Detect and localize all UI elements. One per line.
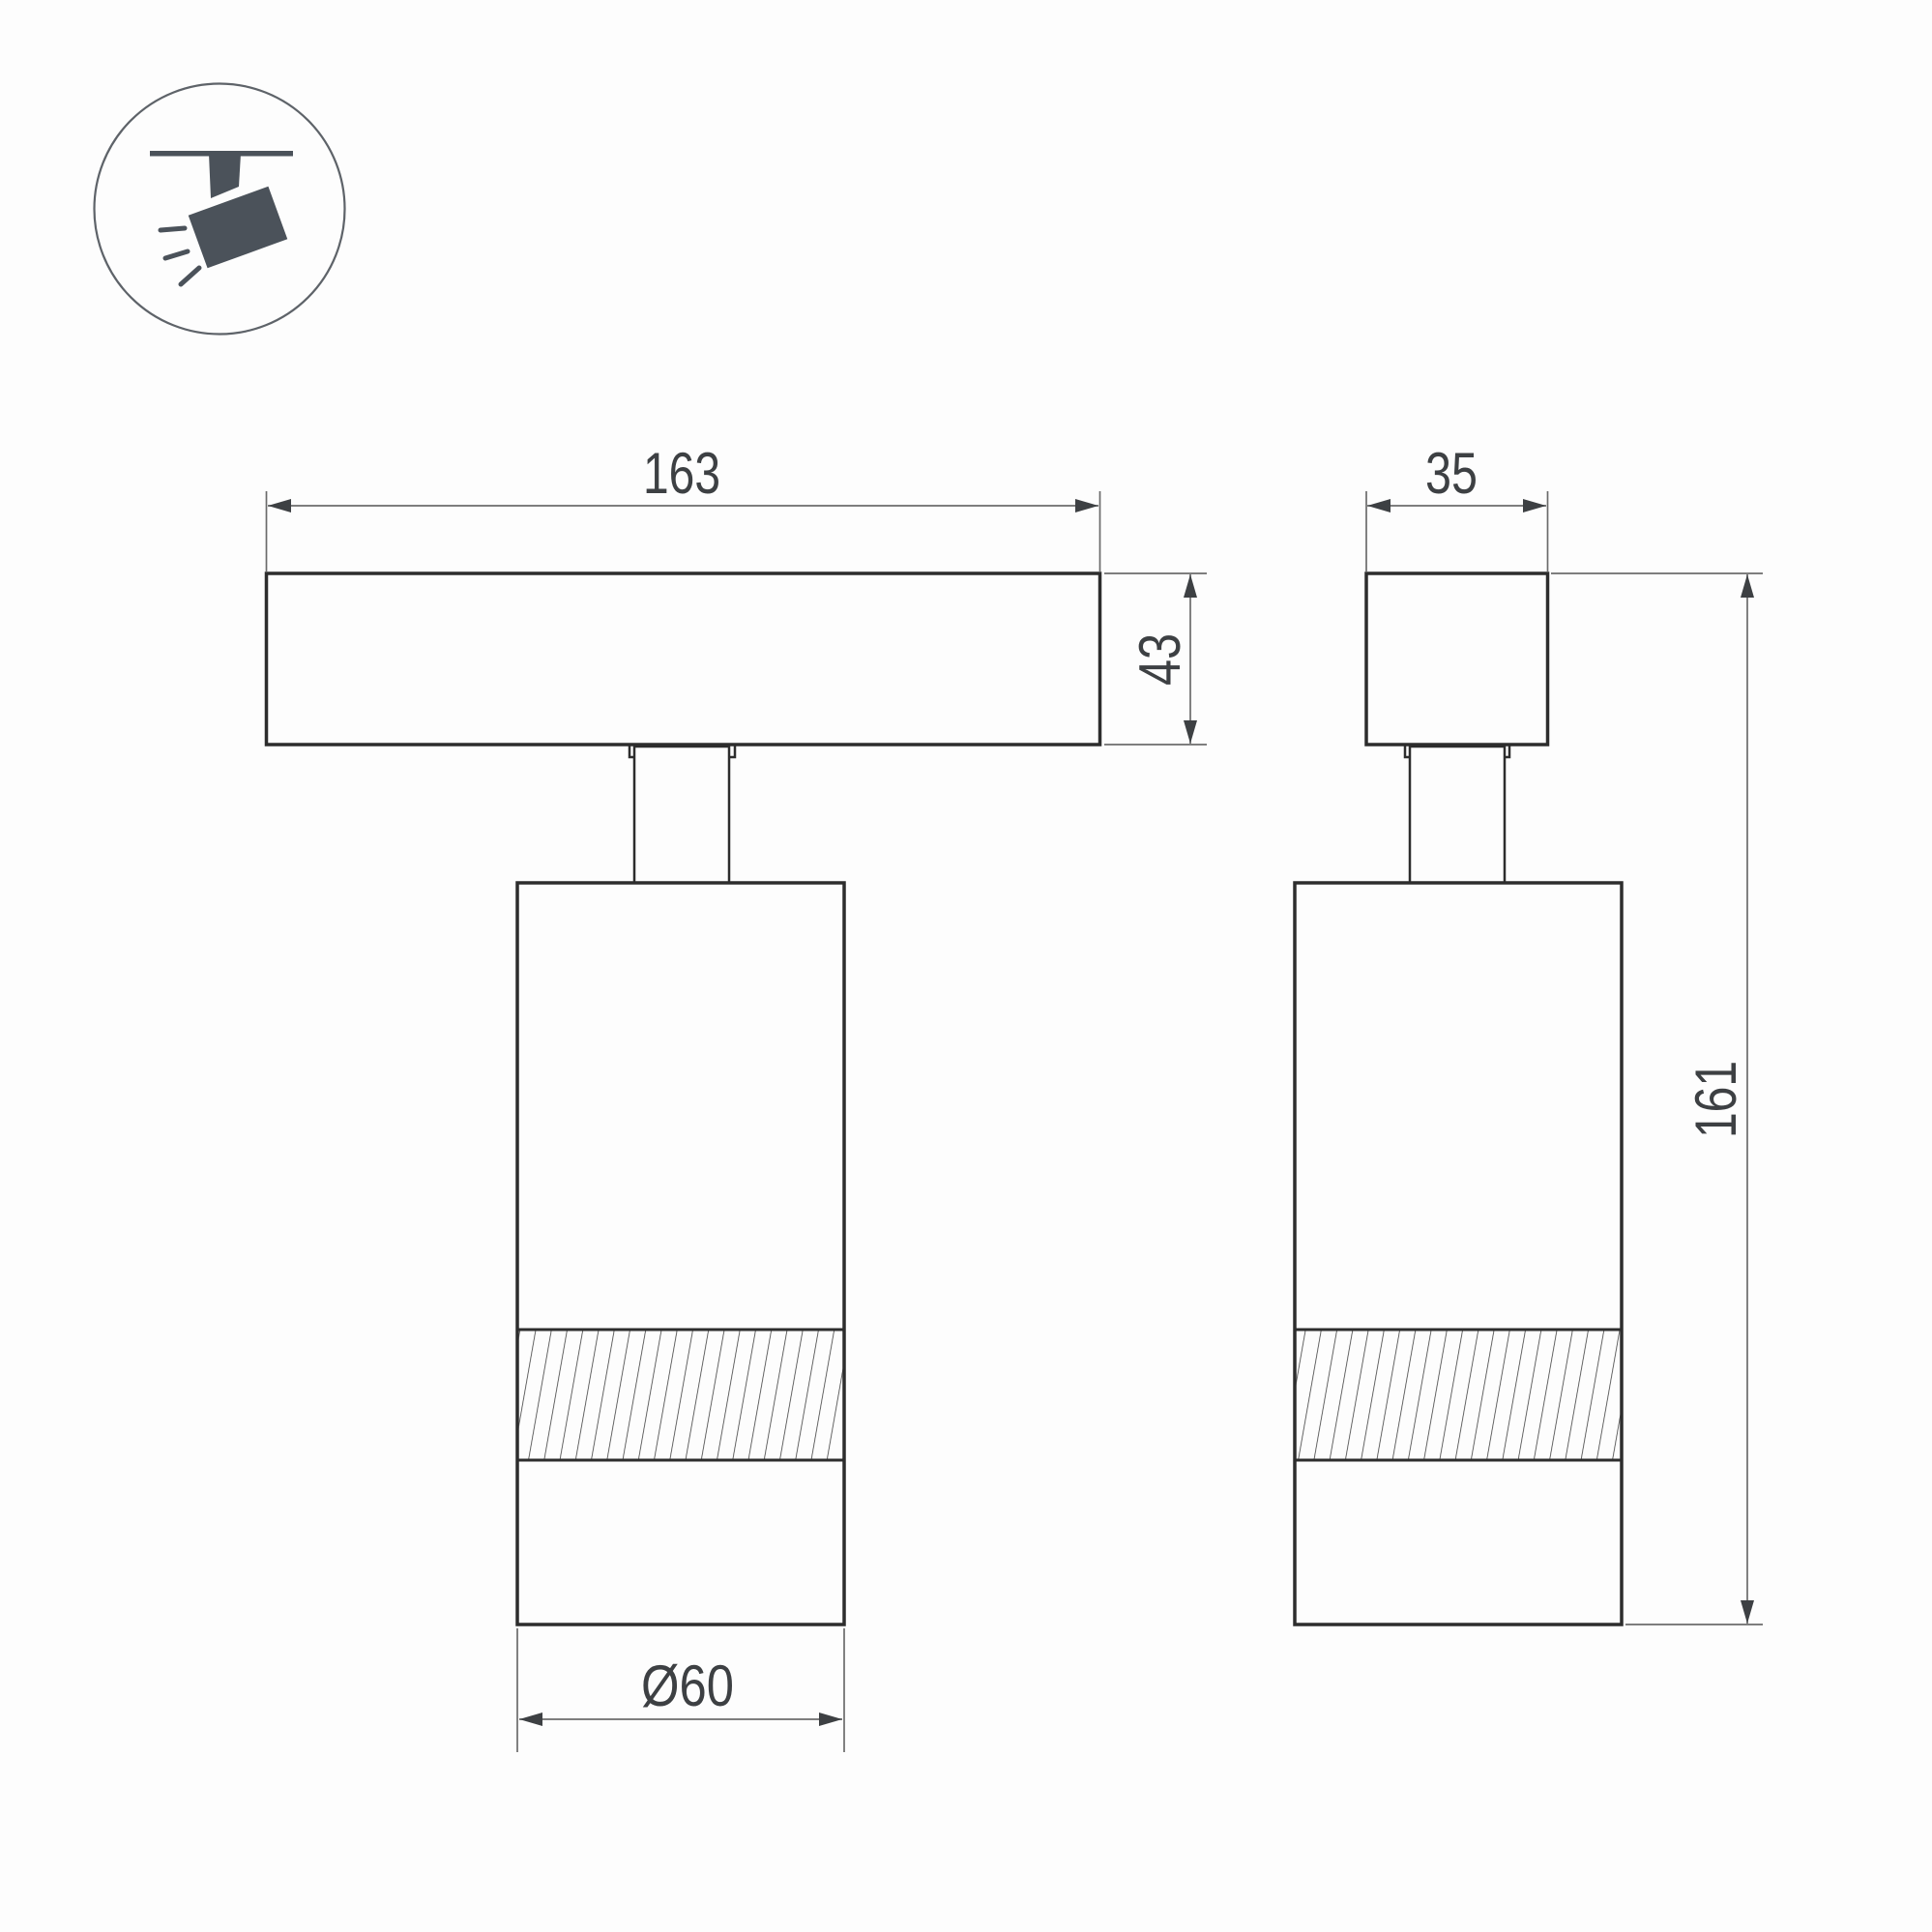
dim-label-front-width: 163 bbox=[643, 441, 720, 506]
arrowhead-up-icon bbox=[1741, 574, 1754, 598]
side-knurl-band bbox=[1295, 1330, 1622, 1460]
front-track-box bbox=[267, 573, 1100, 745]
dimension-body-diameter: Ø60 bbox=[517, 1628, 844, 1752]
dim-label-total-height: 161 bbox=[1683, 1061, 1748, 1138]
arrowhead-right-icon bbox=[1523, 499, 1546, 512]
arrowhead-down-icon bbox=[1184, 720, 1197, 744]
front-stem bbox=[634, 746, 729, 883]
front-body-cylinder bbox=[517, 883, 844, 1625]
arrowhead-right-icon bbox=[1075, 499, 1098, 512]
arrowhead-left-icon bbox=[1367, 499, 1390, 512]
arrowhead-left-icon bbox=[268, 499, 291, 512]
dim-label-track-height: 43 bbox=[1127, 633, 1192, 686]
side-view bbox=[1295, 573, 1622, 1625]
arrowhead-left-icon bbox=[519, 1712, 542, 1726]
front-knurl-band bbox=[517, 1330, 844, 1460]
arrowhead-right-icon bbox=[819, 1712, 842, 1726]
dim-label-side-width: 35 bbox=[1425, 441, 1478, 506]
track-spotlight-icon bbox=[95, 84, 345, 335]
side-stem bbox=[1410, 746, 1505, 883]
dimension-side-width: 35 bbox=[1366, 441, 1548, 571]
dimension-track-height: 43 bbox=[1104, 573, 1207, 745]
side-track-box bbox=[1366, 573, 1548, 745]
front-view bbox=[267, 573, 1100, 1625]
dimension-front-width: 163 bbox=[267, 441, 1100, 571]
arrowhead-down-icon bbox=[1741, 1600, 1754, 1624]
drawing-canvas: 163 43 Ø60 35 bbox=[0, 0, 1932, 1932]
technical-drawing-page: 163 43 Ø60 35 bbox=[0, 0, 1932, 1932]
side-body-cylinder bbox=[1295, 883, 1622, 1625]
dim-label-body-diameter: Ø60 bbox=[641, 1654, 734, 1718]
arrowhead-up-icon bbox=[1184, 574, 1197, 598]
